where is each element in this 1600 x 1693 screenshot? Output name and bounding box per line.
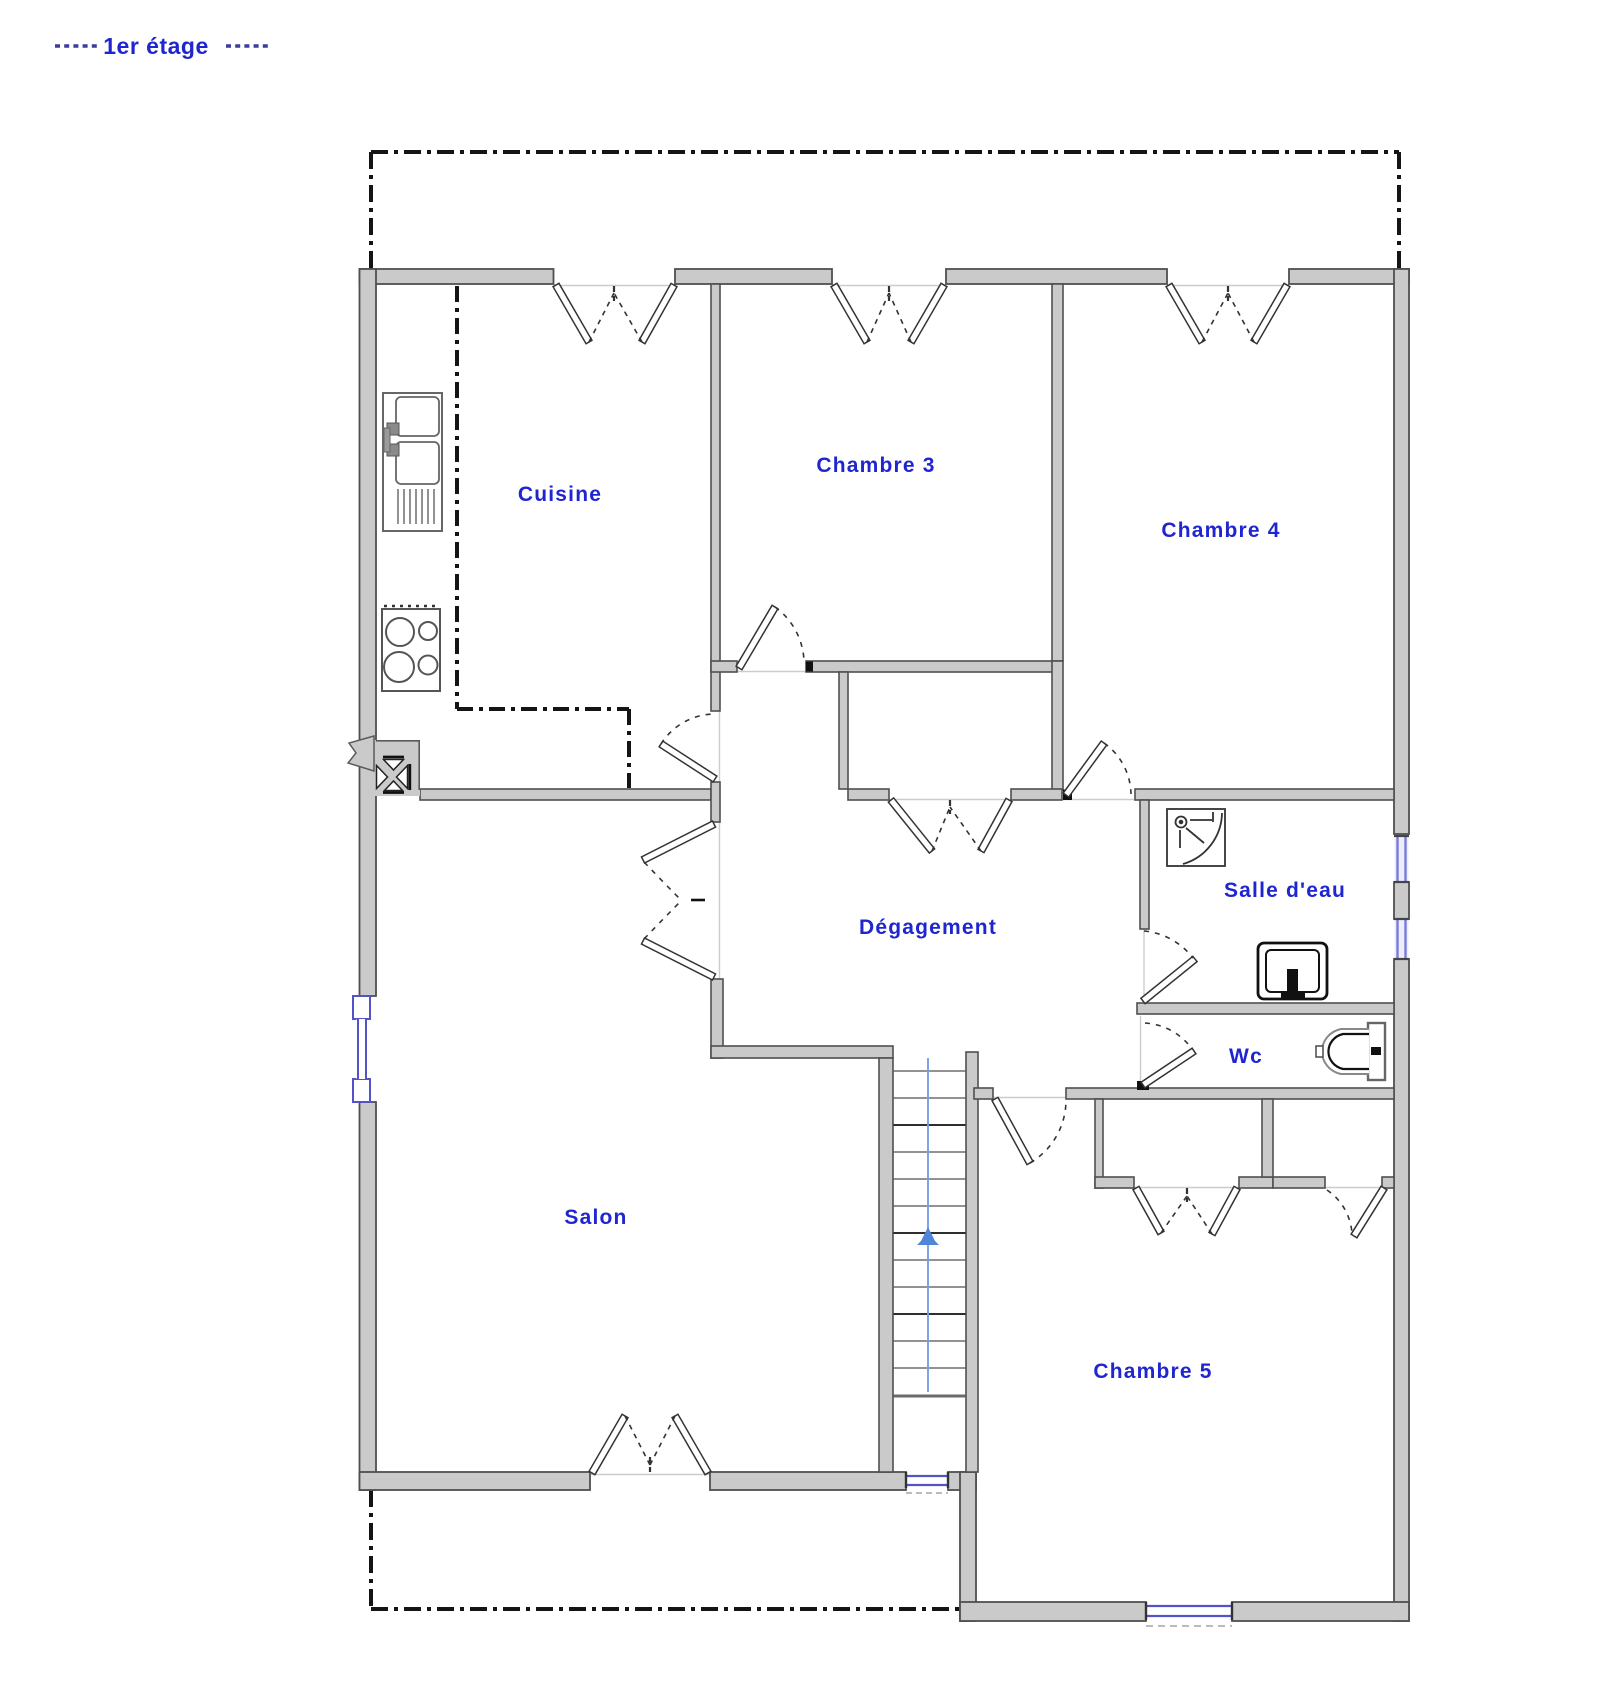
svg-text:Cuisine: Cuisine xyxy=(518,483,602,506)
svg-text:1er étage: 1er étage xyxy=(103,33,209,59)
svg-text:Wc: Wc xyxy=(1229,1045,1263,1068)
svg-text:Salon: Salon xyxy=(564,1206,627,1229)
svg-text:Chambre 5: Chambre 5 xyxy=(1093,1360,1212,1383)
svg-text:Dégagement: Dégagement xyxy=(859,916,997,939)
svg-text:Salle d'eau: Salle d'eau xyxy=(1224,879,1346,902)
svg-text:Chambre 3: Chambre 3 xyxy=(816,454,935,477)
svg-text:Chambre 4: Chambre 4 xyxy=(1161,519,1280,542)
